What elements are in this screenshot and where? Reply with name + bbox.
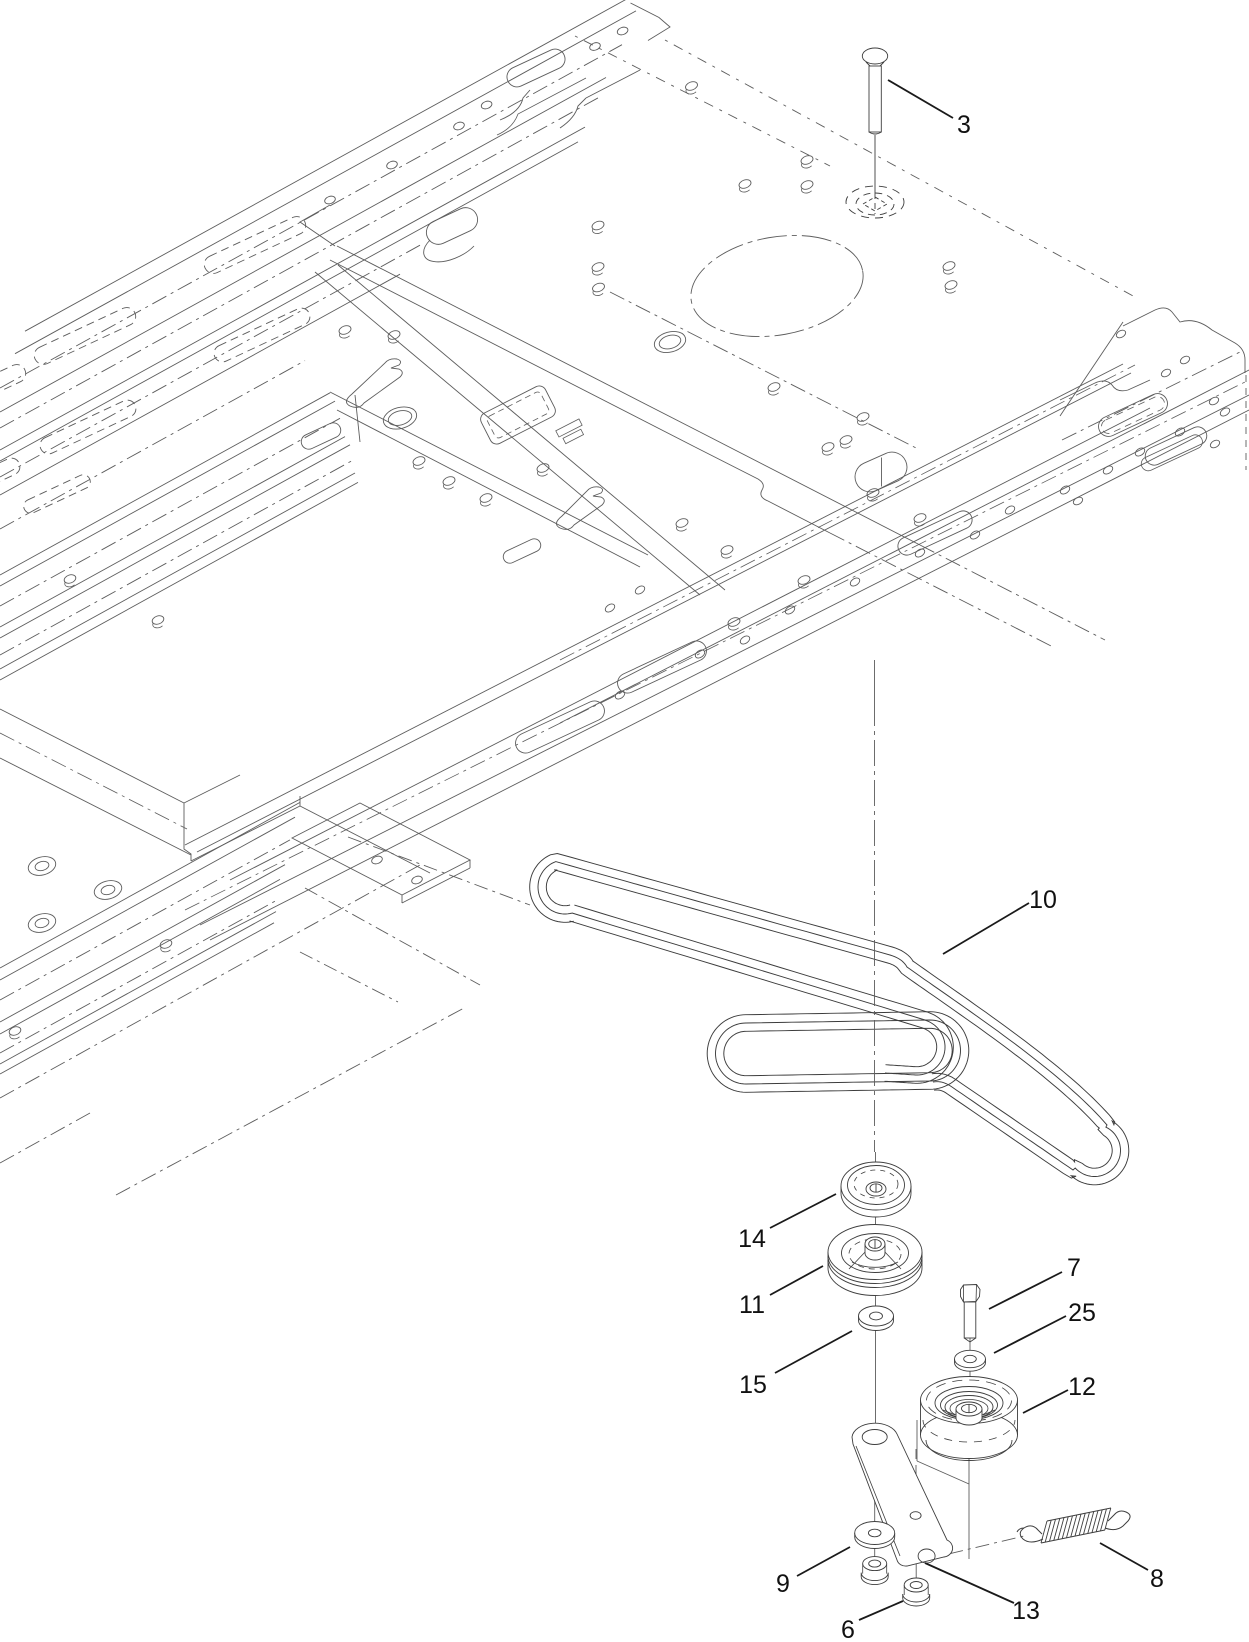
svg-text:6: 6	[841, 1616, 855, 1642]
svg-text:13: 13	[1012, 1597, 1040, 1625]
svg-text:7: 7	[1067, 1254, 1081, 1282]
svg-text:10: 10	[1029, 886, 1057, 914]
svg-text:9: 9	[776, 1570, 790, 1598]
svg-text:15: 15	[739, 1371, 767, 1399]
svg-text:8: 8	[1150, 1565, 1164, 1593]
svg-text:3: 3	[957, 111, 971, 139]
svg-text:11: 11	[739, 1291, 765, 1319]
svg-text:25: 25	[1068, 1299, 1096, 1327]
svg-text:12: 12	[1068, 1373, 1096, 1401]
svg-text:14: 14	[738, 1225, 766, 1253]
